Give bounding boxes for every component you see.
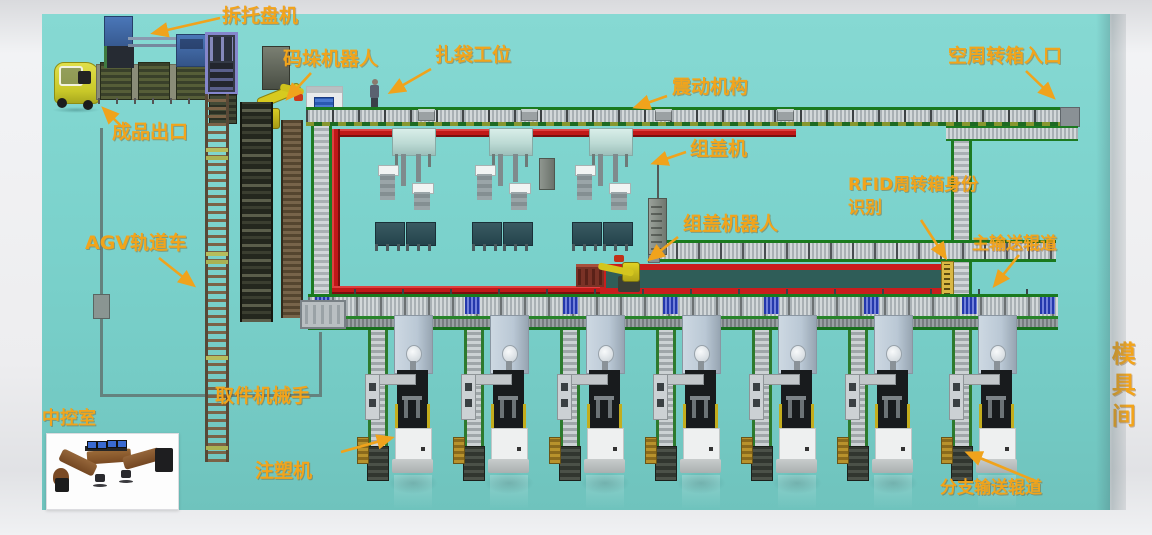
cap-assembly-station	[589, 128, 649, 260]
label-rfid-identification-line2: 识别	[848, 200, 882, 218]
top-conveyor-end-bracket	[1060, 107, 1080, 127]
left-vertical-conveyor	[311, 112, 332, 296]
work-table	[572, 222, 602, 246]
forklift	[52, 57, 102, 111]
brown-conveyor	[281, 120, 303, 318]
tote-station	[941, 437, 953, 464]
label-bagging-station: 扎袋工位	[435, 46, 511, 66]
branch-conveyor-end	[367, 446, 389, 481]
injection-molding-unit	[560, 315, 646, 515]
label-finished-product-exit: 成品出口	[112, 123, 188, 143]
control-room-photo	[46, 433, 179, 510]
picker-gripper	[949, 374, 964, 420]
operator-person	[368, 79, 381, 110]
press-base	[779, 428, 816, 461]
picker-gripper	[461, 374, 476, 420]
injection-molding-unit	[848, 315, 934, 515]
pallet-stack	[176, 62, 208, 100]
blue-slat-section	[864, 297, 879, 314]
forklift-seat	[78, 71, 91, 84]
blue-slat-section	[465, 297, 480, 314]
tote-station	[549, 437, 561, 464]
depalletizer-beam	[128, 44, 180, 47]
press-plinth	[680, 459, 721, 473]
work-table	[375, 222, 405, 246]
tote-station	[453, 437, 465, 464]
agv-guide-path-vertical	[100, 128, 103, 397]
branch-conveyor-end	[751, 446, 773, 481]
press-plinth	[488, 459, 529, 473]
label-empty-tote-entrance: 空周转箱入口	[948, 47, 1062, 67]
label-depalletizer: 拆托盘机	[222, 7, 298, 27]
press-plinth	[392, 459, 433, 473]
label-branch-conveyor: 分支输送辊道	[940, 480, 1042, 498]
robot-end-effector	[294, 94, 303, 101]
label-injection-molding-machine: 注塑机	[255, 462, 312, 482]
electrical-cabinet-2	[648, 198, 667, 255]
picker-gripper	[653, 374, 668, 420]
press-plinth	[776, 459, 817, 473]
assembly-canopy	[589, 128, 633, 156]
assembly-canopy	[392, 128, 436, 156]
conveyor-crate	[521, 109, 538, 121]
red-rail-left	[332, 129, 340, 294]
press-base	[587, 428, 624, 461]
mold-room-wall-shadow	[1096, 14, 1126, 510]
pallet-stack	[138, 62, 170, 100]
blue-slat-section	[563, 297, 578, 314]
press-plinth	[976, 459, 1017, 473]
top-conveyor-lower-segment	[946, 126, 1078, 141]
label-palletizing-robot: 码垛机器人	[283, 50, 378, 70]
label-vibration-mechanism: 震动机构	[672, 78, 748, 98]
injection-molding-unit	[752, 315, 838, 515]
cabinet-leader-line	[657, 163, 659, 200]
cap-assembly-station	[392, 128, 452, 260]
cap-assembly-station	[489, 128, 549, 260]
tote-station	[837, 437, 849, 464]
press-plinth	[872, 459, 913, 473]
label-cap-assembly-machine: 组盖机	[690, 140, 747, 160]
press-base	[875, 428, 912, 461]
press-base	[395, 428, 432, 461]
injection-molding-unit	[368, 315, 454, 515]
picker-gripper	[557, 374, 572, 420]
work-table	[503, 222, 533, 246]
depalletizer-beam	[128, 37, 180, 40]
agv-guide-path-vertical-2	[319, 332, 322, 396]
work-table	[406, 222, 436, 246]
label-control-room: 中控室	[42, 410, 96, 429]
crate-stacker-frame	[205, 32, 238, 95]
injection-molding-unit	[464, 315, 550, 515]
depalletizer-machine	[104, 16, 131, 68]
branch-conveyor-end	[655, 446, 677, 481]
branch-conveyor-end	[847, 446, 869, 481]
assembly-canopy	[489, 128, 533, 156]
blue-slat-section	[663, 297, 678, 314]
label-picker-robot-arm: 取件机械手	[215, 387, 310, 407]
press-base	[491, 428, 528, 461]
press-plinth	[584, 459, 625, 473]
branch-conveyor-end	[559, 446, 581, 481]
agv-path-junction-box	[93, 294, 110, 319]
branch-conveyor-end	[951, 446, 973, 481]
blue-slat-section	[962, 297, 977, 314]
work-table	[603, 222, 633, 246]
factory-layout-diagram: 拆托盘机码垛机器人扎袋工位震动机构空周转箱入口成品出口组盖机RFID周转箱身份识…	[0, 0, 1152, 535]
tote-station	[645, 437, 657, 464]
picker-gripper	[365, 374, 380, 420]
conveyor-crate	[418, 109, 435, 121]
tote-station	[741, 437, 753, 464]
picker-gripper	[845, 374, 860, 420]
label-main-conveyor: 主输送辊道	[972, 236, 1057, 254]
storage-rack	[240, 102, 273, 322]
tote-station	[357, 437, 369, 464]
press-base	[683, 428, 720, 461]
work-table	[472, 222, 502, 246]
conveyor-crate	[655, 109, 672, 121]
label-agv-rail-car: AGV轨道车	[85, 234, 187, 254]
right-vertical-conveyor	[951, 141, 972, 296]
conveyor-crate	[777, 109, 794, 121]
press-base	[979, 428, 1016, 461]
branch-conveyor-end	[463, 446, 485, 481]
picker-gripper	[749, 374, 764, 420]
conveyor-left-chute	[300, 300, 346, 329]
blue-slat-section	[764, 297, 779, 314]
blue-slat-section	[1040, 297, 1055, 314]
office-chair	[121, 470, 131, 478]
label-rfid-identification-line1: RFID周转箱身份	[848, 177, 978, 195]
depalletizer-machine-2	[176, 34, 207, 67]
office-chair	[95, 474, 105, 482]
injection-molding-unit	[656, 315, 742, 515]
label-cap-assembly-robot: 组盖机器人	[683, 215, 778, 235]
